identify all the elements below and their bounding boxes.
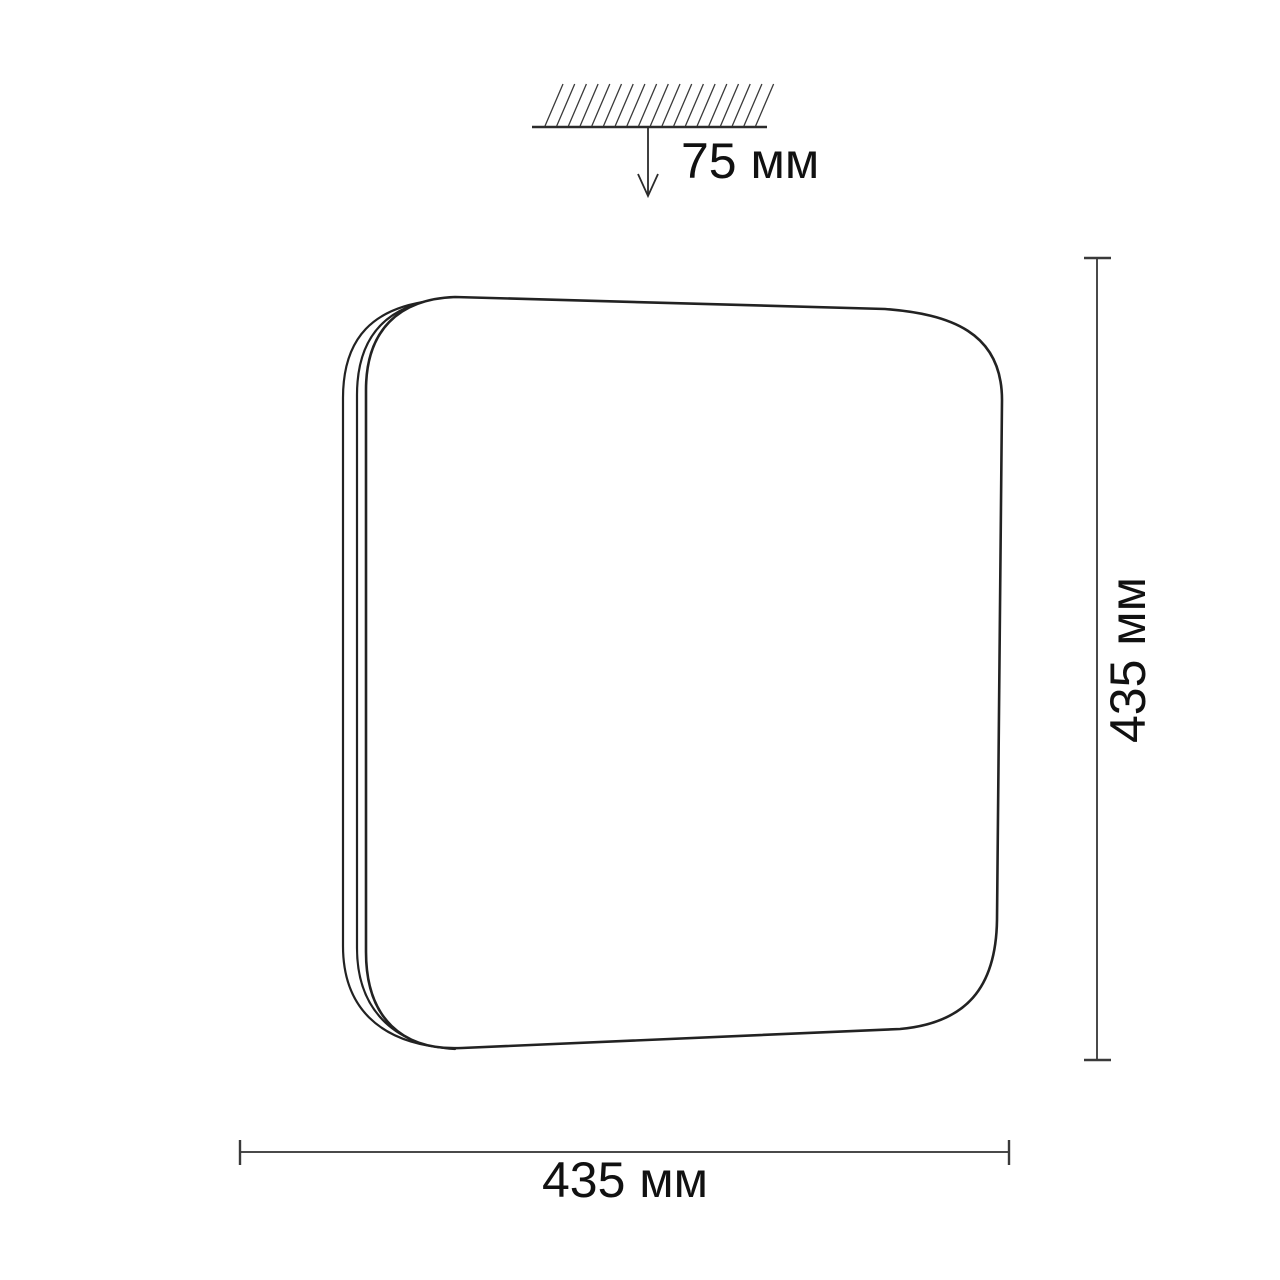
ceiling-hatch-stroke [697,84,715,126]
ceiling-hatch-stroke [568,84,586,126]
ceiling-hatch-stroke [604,84,622,126]
lamp-front-face-outline [366,297,1002,1048]
lamp-dimension-diagram: 75 мм 435 мм 435 мм [0,0,1280,1280]
mount-offset-label: 75 мм [681,133,819,189]
ceiling-hatch-stroke [615,84,633,126]
ceiling-hatch-stroke [732,84,750,126]
ceiling-hatch-stroke [627,84,645,126]
height-dimension-label: 435 мм [1100,577,1156,743]
ceiling-hatch-stroke [580,84,598,126]
dimension-drawing-page: 75 мм 435 мм 435 мм [0,0,1280,1280]
ceiling-hatch-stroke [756,84,774,126]
ceiling-hatch-stroke [674,84,692,126]
ceiling-hatch-stroke [639,84,657,126]
ceiling-symbol [532,84,774,127]
ceiling-hatch-stroke [557,84,575,126]
ceiling-hatch-lines [545,84,774,126]
ceiling-hatch-stroke [592,84,610,126]
lamp-body [343,297,1002,1049]
ceiling-hatch-stroke [709,84,727,126]
mount-offset-dimension: 75 мм [638,128,819,196]
ceiling-hatch-stroke [650,84,668,126]
ceiling-hatch-stroke [721,84,739,126]
height-dimension: 435 мм [1084,258,1156,1060]
width-dimension-label: 435 мм [542,1152,708,1208]
ceiling-hatch-stroke [685,84,703,126]
ceiling-hatch-stroke [545,84,563,126]
ceiling-hatch-stroke [662,84,680,126]
ceiling-hatch-stroke [744,84,762,126]
width-dimension: 435 мм [240,1140,1009,1208]
